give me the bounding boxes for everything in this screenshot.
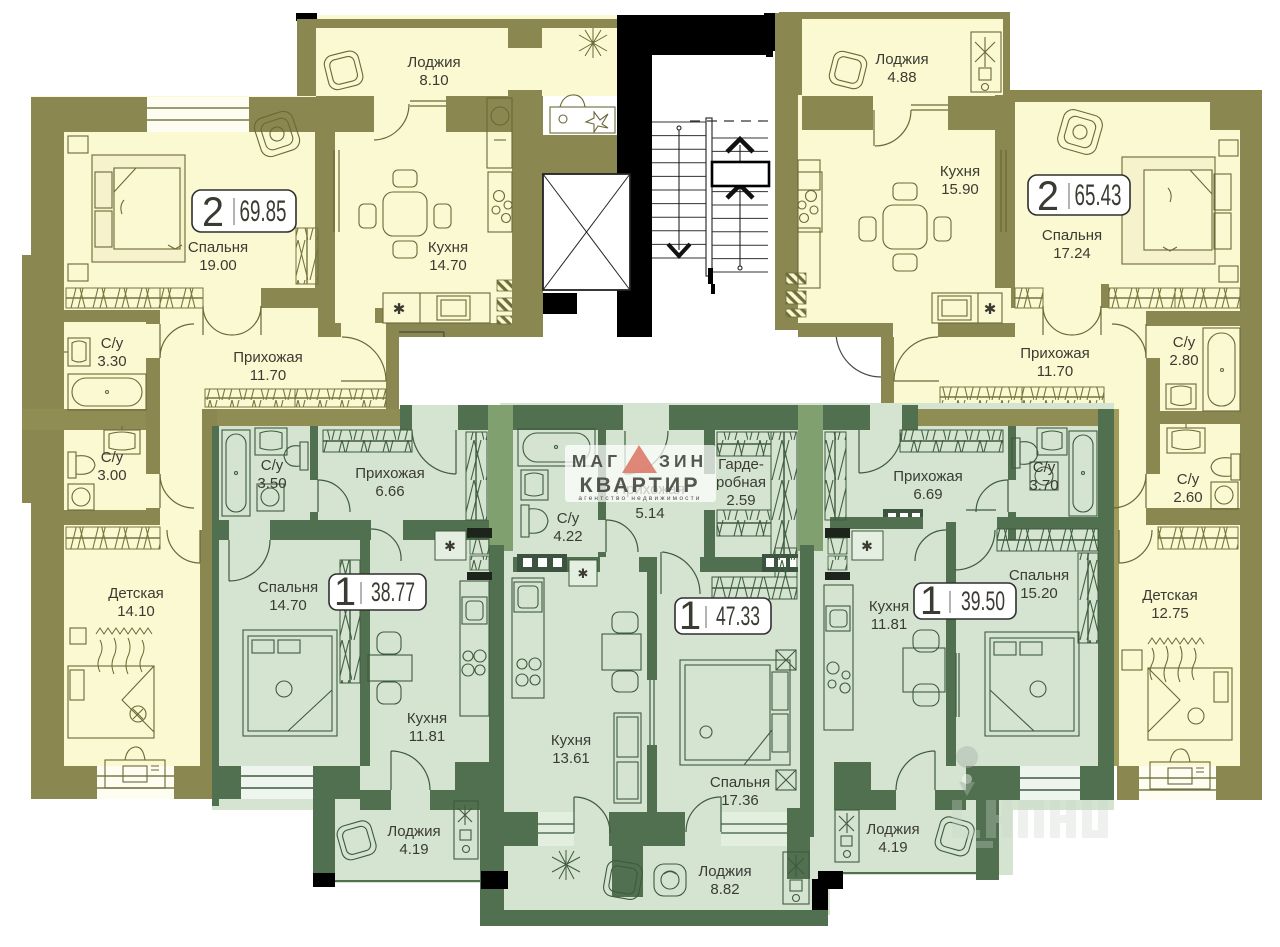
svg-text:КВАРТИР: КВАРТИР [579, 473, 700, 497]
svg-text:15.90: 15.90 [941, 181, 979, 198]
svg-text:14.70: 14.70 [429, 257, 467, 274]
svg-text:4.19: 4.19 [399, 841, 428, 858]
svg-text:4.22: 4.22 [553, 528, 582, 545]
svg-text:65.43: 65.43 [1075, 179, 1122, 212]
svg-text:3.30: 3.30 [97, 353, 126, 370]
svg-text:19.00: 19.00 [199, 257, 237, 274]
svg-text:14.10: 14.10 [117, 603, 155, 620]
svg-text:69.85: 69.85 [240, 195, 287, 228]
svg-text:Прихожая: Прихожая [233, 349, 303, 366]
svg-text:С/у: С/у [1033, 459, 1056, 476]
svg-text:Лоджия: Лоджия [407, 54, 460, 71]
svg-text:Спальня: Спальня [1009, 567, 1069, 584]
svg-text:Кухня: Кухня [551, 732, 591, 749]
svg-text:2: 2 [1037, 172, 1059, 219]
svg-text:6.69: 6.69 [913, 486, 942, 503]
svg-text:3.50: 3.50 [257, 475, 286, 492]
svg-text:✱: ✱ [984, 301, 997, 318]
svg-text:2.60: 2.60 [1173, 489, 1202, 506]
svg-text:Детская: Детская [108, 585, 164, 602]
svg-text:С/у: С/у [1177, 471, 1200, 488]
svg-text:Прихожая: Прихожая [355, 465, 425, 482]
svg-text:4.19: 4.19 [878, 839, 907, 856]
svg-text:Прихожая: Прихожая [1020, 345, 1090, 362]
svg-text:17.24: 17.24 [1053, 245, 1091, 262]
svg-text:Кухня: Кухня [428, 239, 468, 256]
svg-text:Гарде-: Гарде- [718, 456, 764, 473]
svg-text:Спальня: Спальня [188, 239, 248, 256]
svg-text:✱: ✱ [578, 566, 589, 581]
svg-text:17.36: 17.36 [721, 792, 759, 809]
svg-text:Спальня: Спальня [710, 774, 770, 791]
svg-text:С/у: С/у [261, 457, 284, 474]
svg-text:Кухня: Кухня [407, 710, 447, 727]
svg-text:2: 2 [202, 188, 224, 235]
svg-text:Лоджия: Лоджия [866, 821, 919, 838]
svg-text:3.70: 3.70 [1029, 477, 1058, 494]
svg-text:47.33: 47.33 [716, 601, 760, 631]
svg-text:14.70: 14.70 [269, 597, 307, 614]
svg-text:1: 1 [334, 570, 356, 614]
svg-text:Кухня: Кухня [869, 598, 909, 615]
svg-text:8.10: 8.10 [419, 72, 448, 89]
svg-text:С/у: С/у [101, 449, 124, 466]
svg-text:1: 1 [920, 579, 942, 623]
svg-text:✱: ✱ [393, 301, 406, 318]
svg-text:2.80: 2.80 [1169, 352, 1198, 369]
svg-text:11.70: 11.70 [250, 367, 286, 384]
svg-text:2.59: 2.59 [726, 492, 755, 509]
svg-text:робная: робная [716, 474, 766, 491]
svg-text:11.70: 11.70 [1037, 363, 1073, 380]
svg-text:Лоджия: Лоджия [698, 863, 751, 880]
svg-text:11.81: 11.81 [871, 616, 907, 633]
svg-text:38.77: 38.77 [371, 577, 415, 607]
svg-text:12.75: 12.75 [1151, 605, 1189, 622]
svg-text:5.14: 5.14 [635, 505, 664, 522]
svg-text:МАГ: МАГ [572, 451, 621, 471]
svg-text:✱: ✱ [861, 538, 873, 554]
svg-text:ЗИН: ЗИН [659, 451, 707, 471]
svg-text:Детская: Детская [1142, 587, 1198, 604]
svg-text:15.20: 15.20 [1020, 585, 1058, 602]
svg-text:Кухня: Кухня [940, 163, 980, 180]
svg-text:6.66: 6.66 [375, 483, 404, 500]
svg-text:11.81: 11.81 [409, 728, 445, 745]
svg-text:С/у: С/у [1173, 334, 1196, 351]
svg-text:✱: ✱ [444, 538, 456, 554]
svg-text:13.61: 13.61 [552, 750, 590, 767]
svg-text:3.00: 3.00 [97, 467, 126, 484]
svg-text:Лоджия: Лоджия [875, 51, 928, 68]
svg-text:С/у: С/у [557, 510, 580, 527]
svg-text:1: 1 [679, 594, 701, 638]
svg-text:8.82: 8.82 [710, 881, 739, 898]
svg-text:агентство недвижимости: агентство недвижимости [578, 495, 701, 502]
svg-text:Спальня: Спальня [258, 579, 318, 596]
svg-text:С/у: С/у [101, 335, 124, 352]
svg-text:4.88: 4.88 [887, 69, 916, 86]
svg-text:Лоджия: Лоджия [387, 823, 440, 840]
svg-text:Прихожая: Прихожая [893, 468, 963, 485]
svg-text:39.50: 39.50 [961, 586, 1005, 616]
svg-text:Спальня: Спальня [1042, 227, 1102, 244]
